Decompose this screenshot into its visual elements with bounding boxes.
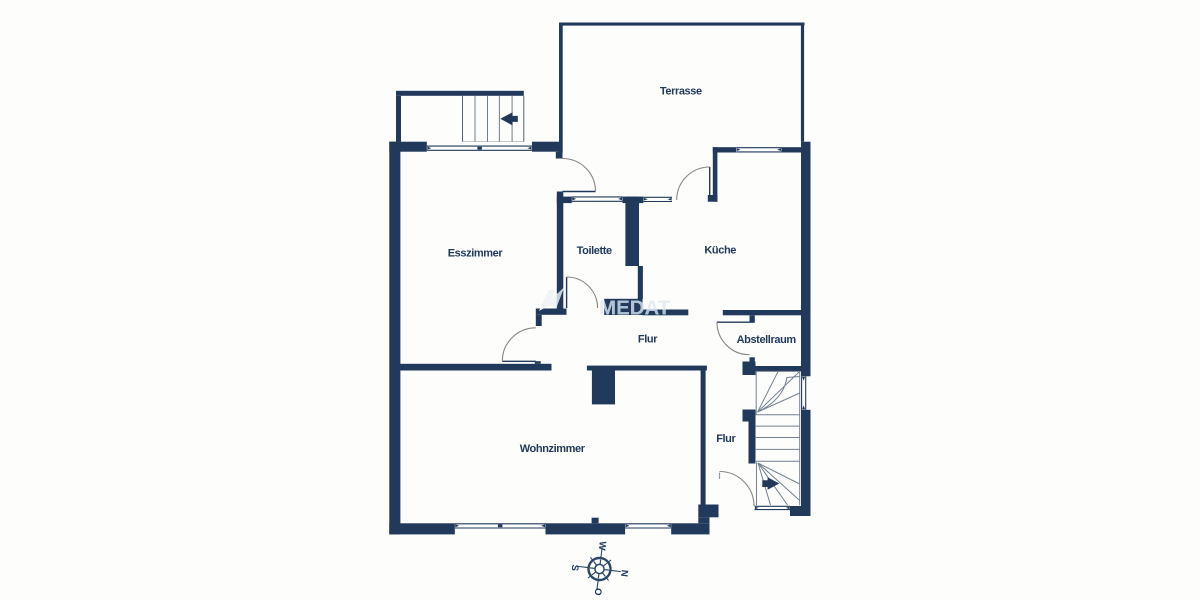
svg-text:O: O — [592, 587, 604, 595]
svg-text:Wohnzimmer: Wohnzimmer — [520, 443, 586, 455]
svg-text:Terrasse: Terrasse — [660, 85, 702, 97]
svg-text:Küche: Küche — [704, 245, 736, 257]
svg-text:Flur: Flur — [716, 433, 736, 445]
svg-text:Flur: Flur — [638, 333, 658, 345]
svg-text:Toilette: Toilette — [577, 245, 612, 257]
svg-text:W: W — [596, 541, 608, 551]
svg-text:Abstellraum: Abstellraum — [737, 334, 797, 346]
svg-text:Esszimmer: Esszimmer — [448, 248, 504, 260]
